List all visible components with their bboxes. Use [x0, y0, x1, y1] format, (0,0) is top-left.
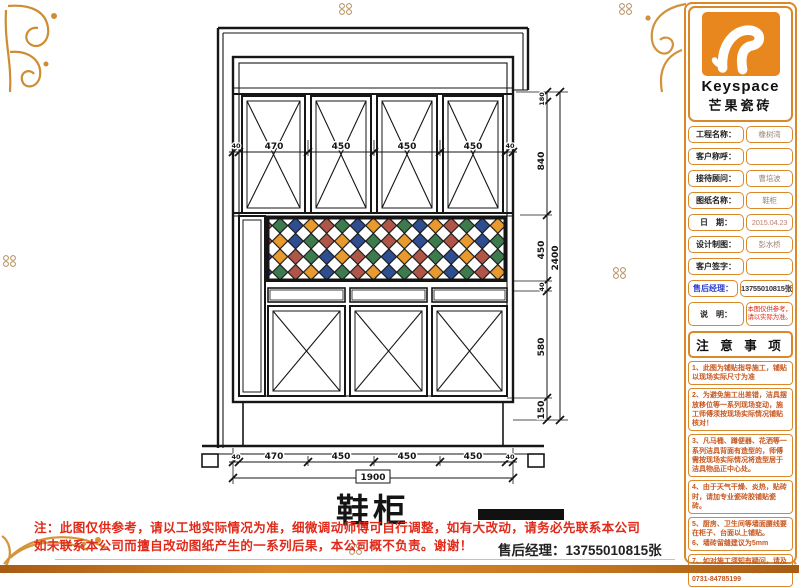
field-value: 13755010815张	[740, 280, 793, 297]
lower-doors	[268, 306, 507, 396]
note-item: 3、凡马桶、蹲便器、花洒等一系列洁具背面有造型的，师傅需按现场实际情况将造型居于…	[688, 434, 793, 477]
dim-total-label: 1900	[360, 473, 385, 483]
field-label: 设计制图：	[688, 236, 744, 253]
note-line: 6、墙砖留缝建议为5mm	[692, 539, 789, 548]
field-value: 曹培波	[746, 170, 793, 187]
base-and-floor	[202, 402, 544, 467]
dim-label: 450	[464, 452, 483, 462]
footer-divider	[55, 559, 675, 560]
info-table: 工程名称： 橡树湾 客户称呼： 接待顾问： 曹培波 图纸名称： 鞋柜 日 期： …	[688, 126, 793, 326]
field-label: 图纸名称：	[688, 192, 744, 209]
dim-label: 450	[537, 241, 547, 260]
dim-label: 150	[537, 401, 547, 420]
dim-label: 40	[231, 453, 241, 461]
title-block-panel: Keyspace 芒果瓷砖 工程名称： 橡树湾 客户称呼： 接待顾问： 曹培波 …	[684, 2, 797, 564]
brand-subname: 芒果瓷砖	[708, 95, 772, 114]
field-label: 日 期：	[688, 214, 744, 231]
brand-name: Keyspace	[701, 78, 779, 95]
disclaimer-line-2: 如未联系本公司而擅自改动图纸产生的一系列后果，本公司概不负责。谢谢！	[34, 535, 473, 554]
table-row-consultant: 接待顾问： 曹培波	[688, 170, 793, 187]
dim-label: 840	[537, 152, 547, 171]
dim-total-label: 2400	[551, 245, 561, 270]
tall-side-panel	[239, 216, 265, 396]
field-label: 客户称呼：	[688, 148, 744, 165]
dim-label: 450	[332, 452, 351, 462]
dim-label: 450	[398, 142, 417, 152]
table-row-project: 工程名称： 橡树湾	[688, 126, 793, 143]
dim-label: 450	[464, 142, 483, 152]
dim-label: 450	[332, 142, 351, 152]
mosaic-band	[266, 216, 507, 282]
field-label: 售后经理：	[688, 280, 738, 297]
mango-logo-icon	[702, 12, 780, 76]
note-item: 1、此图为铺贴指导施工，铺贴以现场实际尺寸为准	[688, 361, 793, 385]
field-value: 本图仅供参考，请以实际为准。	[746, 302, 793, 326]
field-value: 彭水桥	[746, 236, 793, 253]
note-line: 5、厨房、卫生间等墙面腰线要在柜子、台面以上铺贴。	[692, 520, 789, 538]
field-label: 接待顾问：	[688, 170, 744, 187]
field-label: 说 明：	[688, 302, 744, 326]
dim-label: 40	[538, 282, 546, 292]
table-row-signature: 客户签字：	[688, 258, 793, 275]
table-row-drawing-name: 图纸名称： 鞋柜	[688, 192, 793, 209]
dim-label: 470	[265, 142, 284, 152]
dim-label: 580	[537, 338, 547, 357]
field-value: 鞋柜	[746, 192, 793, 209]
dim-label: 40	[505, 142, 515, 150]
field-value	[746, 148, 793, 165]
logo-box: Keyspace 芒果瓷砖	[688, 6, 793, 122]
dim-label: 40	[505, 453, 515, 461]
field-value: 2015.04.23	[746, 214, 793, 231]
table-row-date: 日 期： 2015.04.23	[688, 214, 793, 231]
field-label: 客户签字：	[688, 258, 744, 275]
note-item: 4、由于天气干燥、炎热，贴砖时，请加专业瓷砖胶铺贴瓷砖。	[688, 480, 793, 514]
note-item: 5、厨房、卫生间等墙面腰线要在柜子、台面以上铺贴。 6、墙砖留缝建议为5mm	[688, 517, 793, 551]
disclaimer-line-1: 注：此图仅供参考，请以工地实际情况为准，细微调动师傅可自行调整，如有大改动，请务…	[34, 517, 640, 536]
table-row-remark: 说 明： 本图仅供参考，请以实际为准。	[688, 302, 793, 326]
drawer-row	[268, 288, 507, 302]
notes-section: 注 意 事 项 1、此图为铺贴指导施工，铺贴以现场实际尺寸为准 2、为避免施工出…	[688, 331, 793, 587]
table-row-designer: 设计制图： 彭水桥	[688, 236, 793, 253]
dim-label: 450	[398, 452, 417, 462]
after-sales-manager: 售后经理：13755010815张	[498, 539, 662, 559]
bottom-accent-bar	[0, 565, 799, 573]
signature-field	[746, 258, 793, 275]
notes-title: 注 意 事 项	[688, 331, 793, 358]
note-item: 2、为避免施工出差错，洁具摆放移位等一系列现场变动，施工师傅须按现场实际情况铺贴…	[688, 388, 793, 431]
dim-label: 470	[265, 452, 284, 462]
field-label: 工程名称：	[688, 126, 744, 143]
table-row-after-sales: 售后经理： 13755010815张	[688, 280, 793, 297]
table-row-client: 客户称呼：	[688, 148, 793, 165]
dim-label: 40	[231, 142, 241, 150]
field-value: 橡树湾	[746, 126, 793, 143]
dim-label: 180	[538, 92, 546, 106]
cabinet-drawing: 40 470 450 450 450 40 180 840 450 40 580…	[0, 0, 680, 573]
